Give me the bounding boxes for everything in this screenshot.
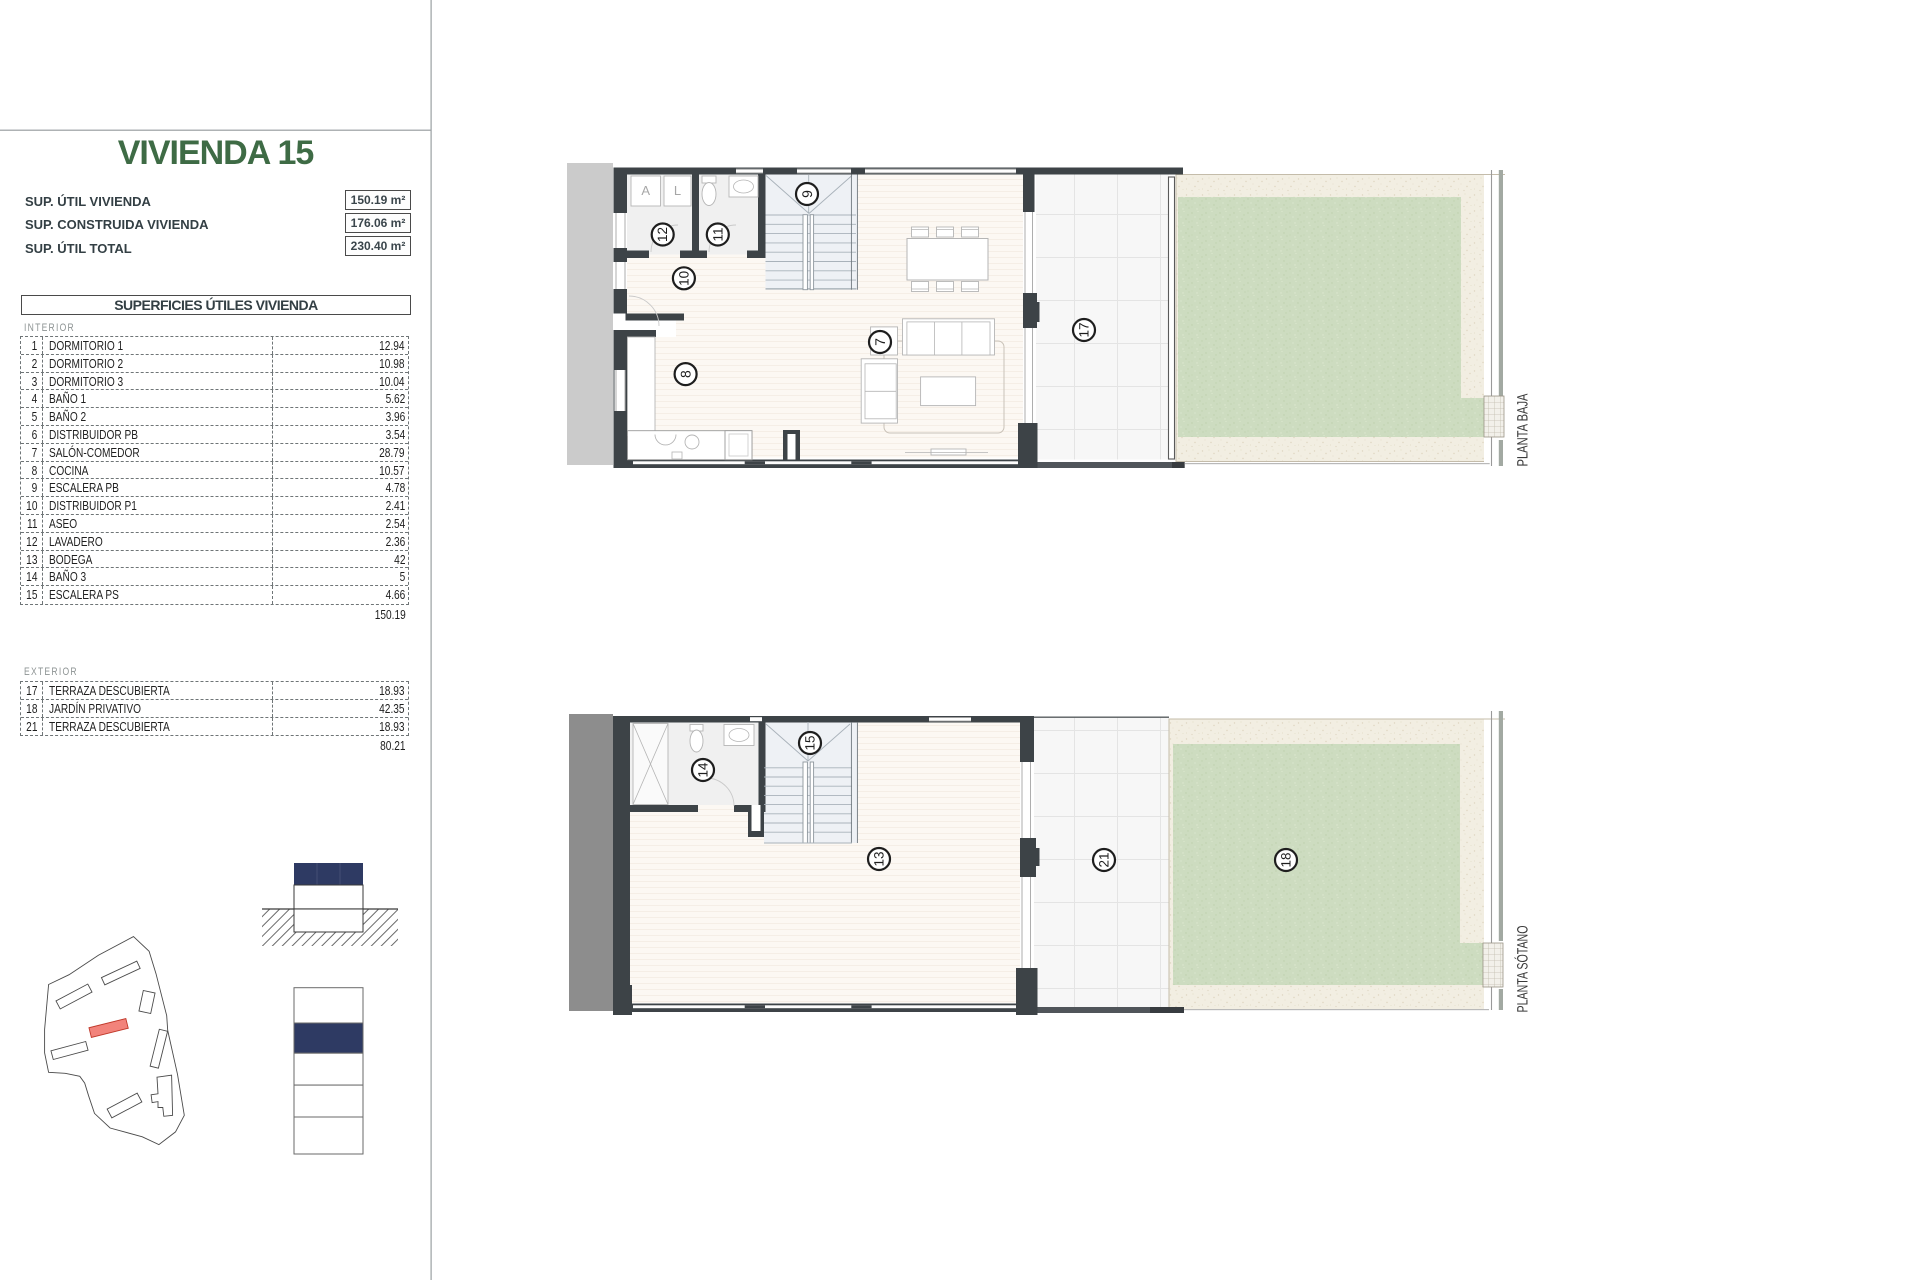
svg-text:A: A <box>641 183 650 198</box>
svg-text:PLANTA BAJA: PLANTA BAJA <box>1515 394 1532 467</box>
svg-text:PLANTA SÓTANO: PLANTA SÓTANO <box>1514 926 1532 1013</box>
svg-text:18: 18 <box>1279 852 1294 867</box>
svg-text:L: L <box>674 183 681 198</box>
svg-text:10: 10 <box>676 271 691 286</box>
svg-text:14: 14 <box>696 762 711 778</box>
svg-text:17: 17 <box>1077 322 1092 337</box>
svg-text:12: 12 <box>655 227 670 242</box>
svg-text:11: 11 <box>710 227 725 241</box>
svg-text:21: 21 <box>1097 852 1112 867</box>
svg-text:15: 15 <box>803 735 818 750</box>
svg-text:13: 13 <box>872 851 887 866</box>
svg-text:9: 9 <box>799 190 815 198</box>
svg-text:8: 8 <box>678 370 694 378</box>
svg-text:7: 7 <box>872 338 888 346</box>
